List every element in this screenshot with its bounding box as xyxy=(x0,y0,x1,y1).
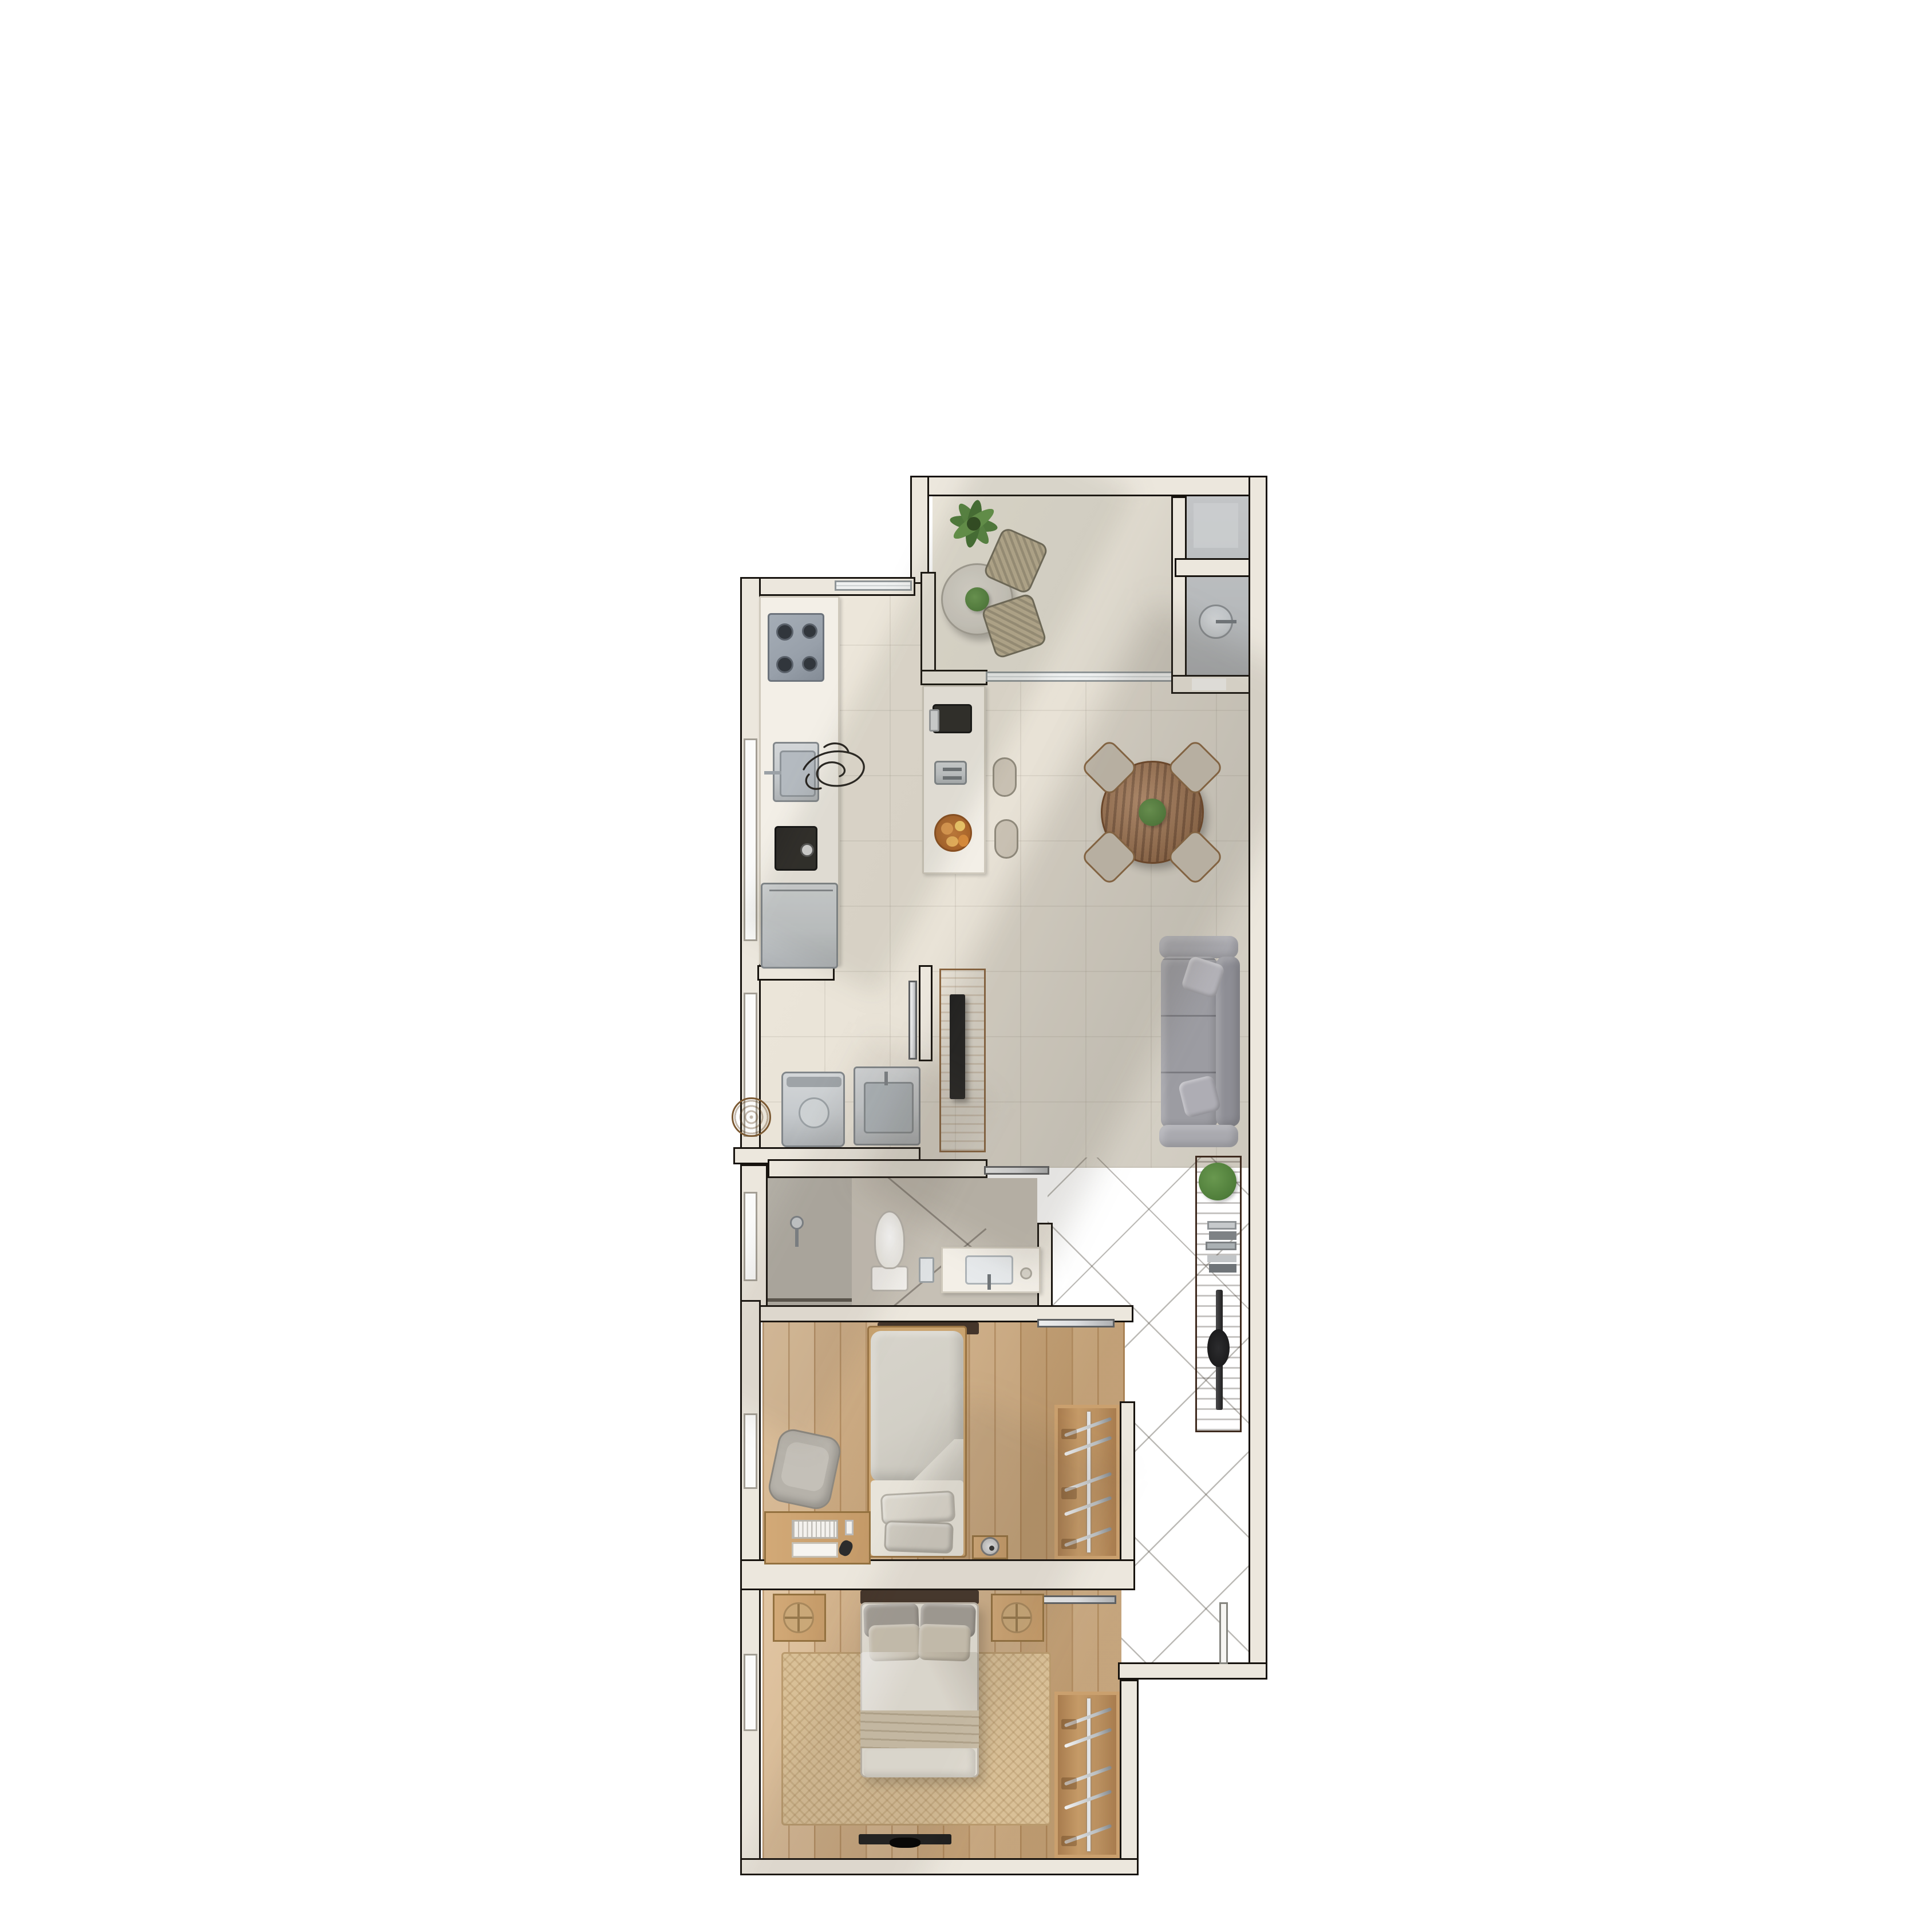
bedroom2-tv-stand xyxy=(890,1838,920,1848)
kitchen-window-left xyxy=(744,738,757,941)
woven-tray xyxy=(783,1602,814,1633)
shelf-shadow xyxy=(1061,1487,1077,1499)
bedroom2-window-left xyxy=(744,1654,757,1731)
notebook xyxy=(792,1542,838,1558)
espresso-tray xyxy=(929,709,939,732)
bar-stool xyxy=(994,819,1018,859)
bath-window-left xyxy=(744,1192,757,1281)
washer-drum xyxy=(799,1097,829,1128)
utility-hatch xyxy=(1194,503,1238,548)
wall-laundry-right xyxy=(919,965,933,1061)
laundry-sink-basin xyxy=(864,1082,914,1133)
wall-utility-divider xyxy=(1175,558,1250,577)
bed1-lamp xyxy=(981,1537,999,1556)
washing-machine xyxy=(781,1072,845,1147)
laundry-faucet xyxy=(884,1072,888,1085)
book-stack xyxy=(1207,1221,1236,1230)
bed1-pillow xyxy=(884,1520,954,1554)
soap-dish xyxy=(1020,1267,1032,1279)
woven-tray xyxy=(1001,1602,1032,1633)
burner xyxy=(776,623,793,641)
bedroom2-door-leaf xyxy=(1037,1595,1116,1604)
sideboard-plant xyxy=(1199,1163,1236,1200)
dining-centerpiece-plant xyxy=(1139,799,1166,826)
canvas xyxy=(0,0,1932,1932)
burner xyxy=(802,623,817,639)
toaster-slot xyxy=(943,776,962,780)
bed2-duvet-foot xyxy=(864,1748,975,1777)
shelf-shadow xyxy=(1061,1539,1077,1549)
wall-terrace-left xyxy=(910,476,929,584)
sofa-armrest xyxy=(1159,936,1238,958)
wall-terrace-corner-h xyxy=(920,670,987,685)
coffee-machine xyxy=(775,826,817,871)
lamp-bulb xyxy=(989,1546,994,1551)
refrigerator xyxy=(761,883,838,969)
mouse xyxy=(837,1539,854,1558)
shelf-shadow xyxy=(1061,1429,1077,1439)
toilet-tank xyxy=(871,1266,908,1291)
bar-stool xyxy=(993,757,1017,797)
book-stack xyxy=(1209,1231,1236,1240)
desk-chair-cushion xyxy=(780,1440,831,1493)
bathroom-door-leaf xyxy=(984,1166,1049,1175)
card xyxy=(845,1520,854,1535)
book-stack xyxy=(1207,1255,1236,1262)
espresso-machine xyxy=(933,704,972,733)
book-stack xyxy=(1209,1264,1236,1273)
entry-door-leaf xyxy=(1219,1602,1228,1664)
wall-bedroom2-right xyxy=(1120,1680,1139,1875)
sofa-armrest xyxy=(1159,1125,1238,1147)
fruit xyxy=(958,835,969,847)
toaster xyxy=(934,761,967,785)
fruit xyxy=(941,823,953,835)
toothbrush-cup xyxy=(919,1257,934,1283)
shelf-shadow xyxy=(1061,1777,1077,1789)
floor-plan xyxy=(0,0,1932,1932)
wall-tv xyxy=(950,994,965,1099)
fruit xyxy=(946,836,958,847)
gas-cooktop xyxy=(768,613,824,682)
tv-decor-lens xyxy=(1207,1329,1230,1367)
desk xyxy=(764,1511,871,1564)
washer-panel xyxy=(787,1077,841,1087)
wall-bedroom1-right xyxy=(1120,1401,1135,1578)
fruit-bowl xyxy=(934,814,972,852)
wall-bath-top xyxy=(768,1159,987,1178)
shelf-shadow xyxy=(1061,1836,1077,1846)
burner xyxy=(802,656,817,671)
fruit xyxy=(955,821,965,831)
wall-hall-bottom xyxy=(1118,1662,1267,1680)
bed1-duvet-fold xyxy=(905,1439,963,1484)
bed1-pillow xyxy=(880,1491,956,1526)
shower-curb xyxy=(768,1298,852,1301)
laundry-sink xyxy=(854,1066,920,1145)
bed2-blanket xyxy=(860,1710,979,1748)
bedroom2-closet xyxy=(1054,1692,1120,1858)
burner xyxy=(776,656,793,673)
bedroom1-door-leaf xyxy=(1037,1319,1115,1327)
shower-head xyxy=(790,1216,804,1230)
wall-utility-left xyxy=(1171,496,1187,678)
sliding-glass-door xyxy=(986,671,1175,682)
kitchen-window-top xyxy=(835,580,912,591)
toaster-slot xyxy=(943,768,962,772)
coffee-dial xyxy=(800,843,814,857)
fridge-handle xyxy=(769,890,833,892)
toilet-bowl xyxy=(874,1211,905,1269)
laundry-door-leaf xyxy=(908,981,917,1060)
bedroom1-closet xyxy=(1054,1405,1120,1559)
book-stack xyxy=(1206,1242,1236,1250)
keyboard xyxy=(792,1520,838,1539)
bedroom1-window-left xyxy=(744,1413,757,1489)
utility-door-gap xyxy=(1192,678,1226,690)
laundry-basket xyxy=(732,1097,771,1137)
sink-faucet xyxy=(764,771,781,774)
tank-handle xyxy=(1216,620,1236,623)
sketch-figure xyxy=(797,735,876,800)
vanity-faucet xyxy=(987,1274,991,1290)
wall-right-outer xyxy=(1249,476,1267,1680)
palm-center xyxy=(967,517,981,531)
vanity xyxy=(941,1247,1041,1293)
shelf-shadow xyxy=(1061,1719,1077,1729)
wall-bedroom2-bottom xyxy=(740,1858,1139,1875)
wall-terrace-corner-v xyxy=(920,572,936,685)
